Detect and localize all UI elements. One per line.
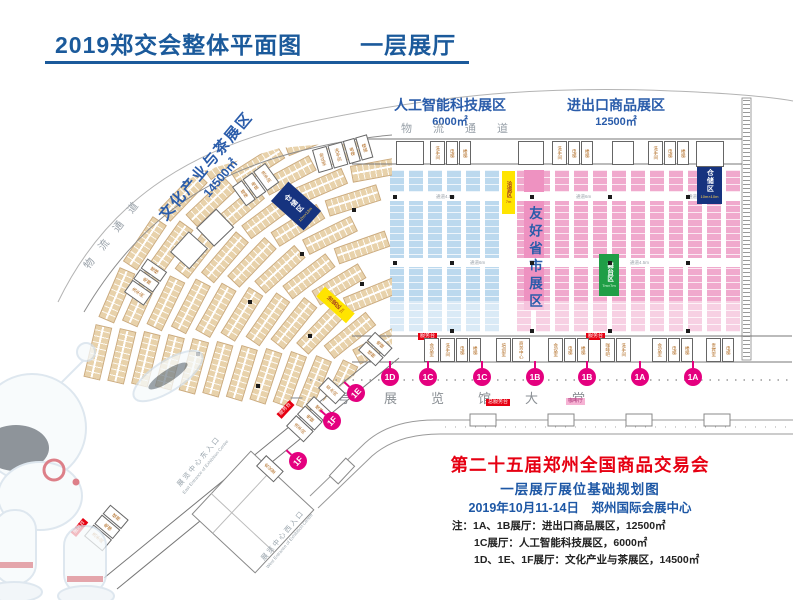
pillar: [308, 334, 312, 338]
room: 洗手间: [552, 141, 567, 165]
room: 洗手间: [440, 338, 455, 362]
pillar: [608, 329, 612, 333]
room: 楼梯: [677, 141, 689, 165]
pillar: [608, 261, 612, 265]
gate-stem: [389, 361, 391, 368]
gate-stem: [586, 361, 588, 368]
room: [518, 141, 544, 165]
room: 会议室: [256, 455, 284, 482]
room-cluster: 楼梯电梯: [358, 332, 393, 367]
note-line: 注：1A、1B展厅：进出口商品展区，12500㎡: [452, 518, 782, 533]
room: 洗手间: [648, 141, 663, 165]
robot-mascot: [0, 300, 228, 600]
pillar: [530, 261, 534, 265]
gate-badge: 1D: [381, 368, 399, 386]
fair-title: 第二十五届郑州全国商品交易会: [380, 452, 780, 477]
room: 楼梯: [581, 141, 593, 165]
room: 会议室: [548, 338, 563, 362]
gate-badge: 1B: [526, 368, 544, 386]
room-cluster: 贵宾室电梯: [706, 338, 734, 362]
room-cluster: 会议室电梯楼梯: [652, 338, 693, 362]
room: 培训室: [496, 338, 511, 362]
room: 电梯: [564, 338, 576, 362]
pillar: [393, 195, 397, 199]
room-cluster: 培训室商务中心: [496, 338, 530, 362]
room-cluster: 茶水间: [318, 377, 346, 404]
gate-badge: 1E: [343, 380, 368, 405]
room: 楼梯: [469, 338, 481, 362]
room-cluster: 咖啡吧洗手间: [600, 338, 631, 362]
room: [196, 209, 234, 247]
room: 咖啡吧: [600, 338, 615, 362]
pillar: [686, 195, 690, 199]
room: 洗手间: [430, 141, 445, 165]
room: 楼梯: [459, 141, 471, 165]
room: [612, 141, 634, 165]
pillar: [686, 261, 690, 265]
pillar: [608, 195, 612, 199]
room: 会议室: [424, 338, 439, 362]
room: [696, 141, 724, 167]
pillar: [256, 384, 260, 388]
gate-badge: 1B: [578, 368, 596, 386]
room: 电梯: [456, 338, 468, 362]
room-cluster: 会议室: [256, 455, 284, 482]
pillar: [530, 195, 534, 199]
room-cluster: 会议室电梯楼梯: [548, 338, 589, 362]
room: 电梯: [668, 338, 680, 362]
pillar: [530, 329, 534, 333]
gate-stem: [639, 361, 641, 368]
pillar: [248, 300, 252, 304]
gate-stem: [534, 361, 536, 368]
gate-badge: 1A: [684, 368, 702, 386]
room-cluster: 洗手间电梯楼梯: [430, 141, 471, 165]
gate-stem: [692, 361, 694, 368]
gate-stem: [427, 361, 429, 368]
room: 会议室: [652, 338, 667, 362]
room: 洗手间: [616, 338, 631, 362]
room: 商务中心: [512, 338, 530, 362]
room: 电梯: [568, 141, 580, 165]
floor-plan-poster: 2019郑交会整体平面图一层展厅 人工智能科技展区: [0, 0, 800, 600]
gate-badge: 1F: [285, 448, 310, 473]
room-cluster: 楼梯电梯洗手间: [232, 163, 279, 207]
room-cluster: 会议室洗手间电梯楼梯: [312, 134, 373, 173]
gate-badge: 1C: [419, 368, 437, 386]
plan-subtitle: 一层展厅展位基础规划图: [380, 478, 780, 498]
pillar: [300, 252, 304, 256]
room-cluster: 洗手间电梯楼梯: [552, 141, 593, 165]
note-line: 1C展厅：人工智能科技展区，6000㎡: [452, 535, 800, 550]
room: [170, 231, 208, 269]
gate-stem: [286, 449, 292, 455]
gate-stem: [344, 381, 350, 387]
note-line: 1D、1E、1F展厅：文化产业与茶展区，14500㎡: [452, 552, 800, 567]
pillar: [352, 208, 356, 212]
gate-badge: 1F: [319, 408, 344, 433]
room: [396, 141, 424, 165]
pillar: [360, 282, 364, 286]
room: 茶水间: [318, 377, 346, 404]
room-cluster: 会议室洗手间电梯楼梯: [424, 338, 481, 362]
room: 电梯: [722, 338, 734, 362]
pillar: [686, 329, 690, 333]
room: 楼梯: [681, 338, 693, 362]
room: 贵宾室: [706, 338, 721, 362]
room: 电梯: [446, 141, 458, 165]
date-venue: 2019年10月11-14日 郑州国际会展中心: [380, 497, 780, 516]
pillar: [450, 261, 454, 265]
pillar: [450, 329, 454, 333]
pillar: [450, 195, 454, 199]
gate-stem: [481, 361, 483, 368]
gate-badge: 1C: [473, 368, 491, 386]
room: 电梯: [664, 141, 676, 165]
gate-badge: 1A: [631, 368, 649, 386]
pillar: [393, 261, 397, 265]
room-cluster: 洗手间电梯楼梯: [648, 141, 689, 165]
room: 楼梯: [577, 338, 589, 362]
room-cluster: 洗手间电梯楼梯: [124, 258, 167, 305]
